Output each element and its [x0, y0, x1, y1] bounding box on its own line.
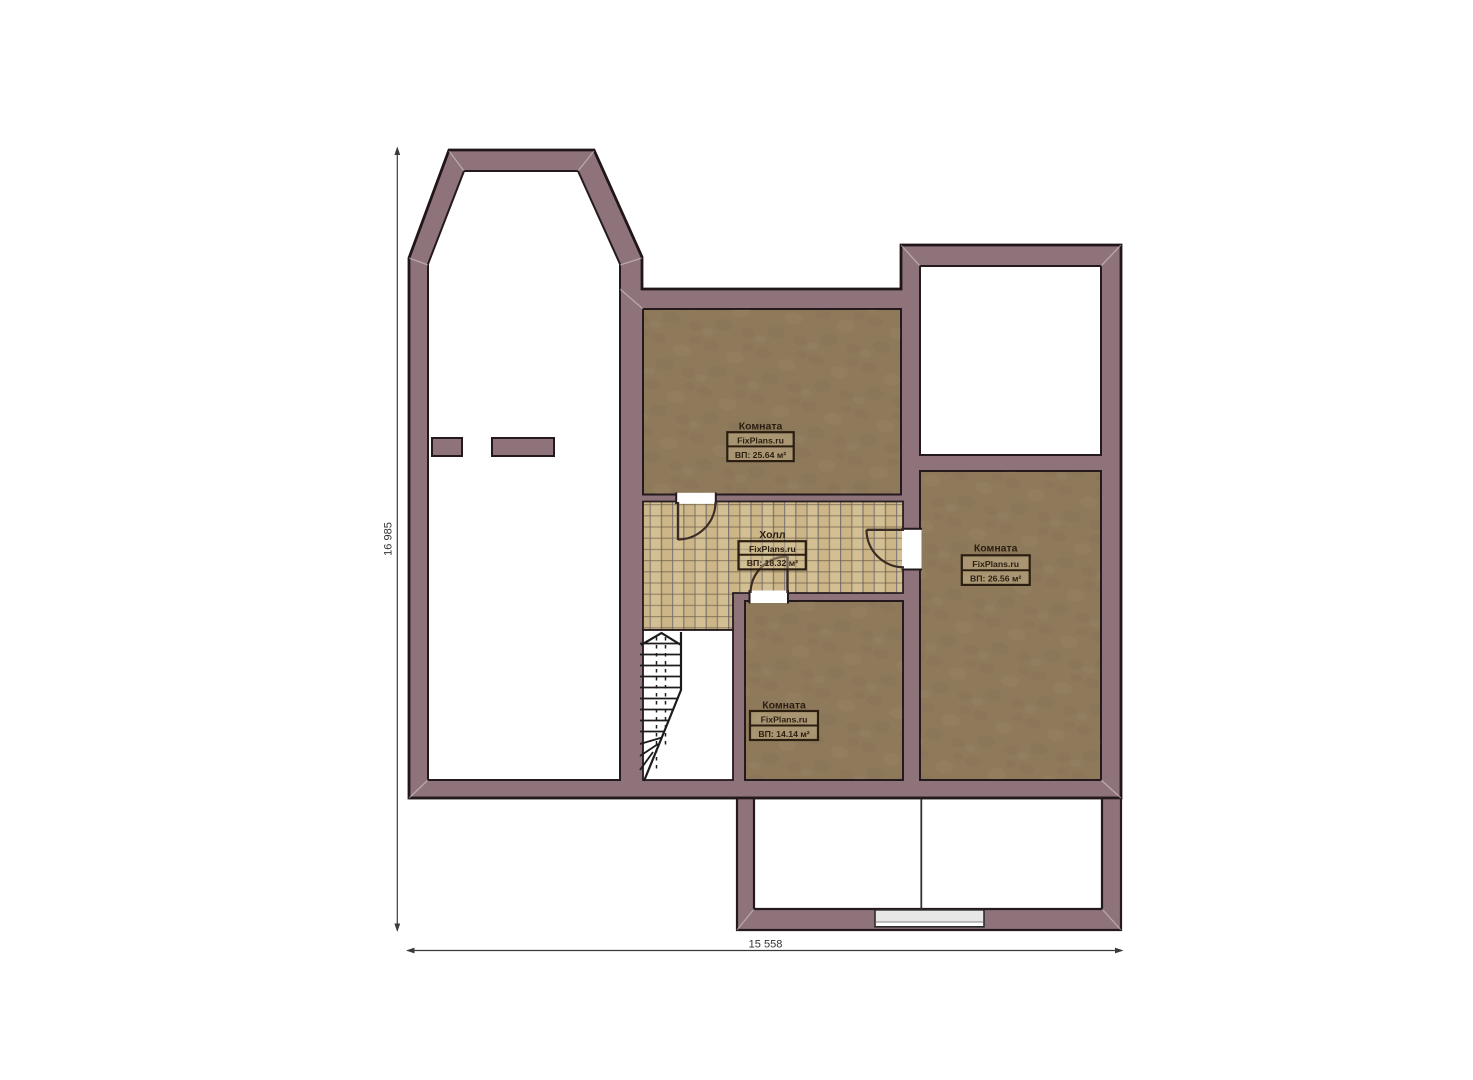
svg-text:ВП: 26.56 м²: ВП: 26.56 м²: [970, 574, 1021, 584]
svg-text:Комната: Комната: [762, 700, 806, 712]
svg-text:FixPlans.ru: FixPlans.ru: [737, 436, 784, 446]
svg-text:ВП: 25.64 м²: ВП: 25.64 м²: [735, 450, 786, 460]
svg-text:Комната: Комната: [739, 421, 783, 433]
svg-text:ВП: 14.14 м²: ВП: 14.14 м²: [758, 729, 809, 739]
svg-text:FixPlans.ru: FixPlans.ru: [972, 559, 1019, 569]
svg-text:Комната: Комната: [974, 543, 1018, 555]
svg-text:FixPlans.ru: FixPlans.ru: [761, 715, 808, 725]
svg-text:16 985: 16 985: [383, 522, 395, 556]
svg-text:Холл: Холл: [759, 529, 785, 541]
svg-text:15 558: 15 558: [749, 939, 783, 951]
svg-text:ВП: 18.32 м²: ВП: 18.32 м²: [747, 558, 798, 568]
svg-text:FixPlans.ru: FixPlans.ru: [749, 544, 796, 554]
